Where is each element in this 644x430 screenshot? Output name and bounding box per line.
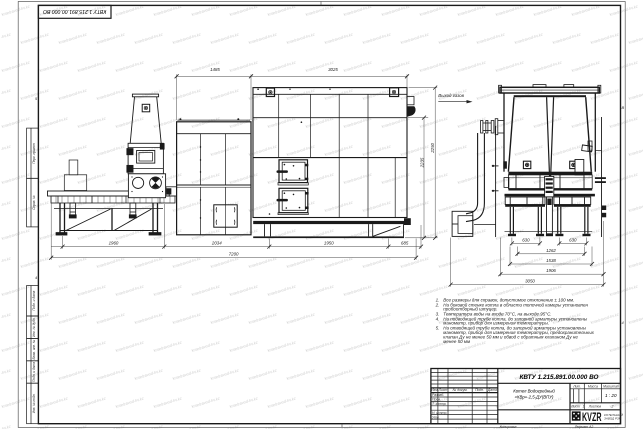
svg-text:КВТУ 1.215.891.00.000 ВО: КВТУ 1.215.891.00.000 ВО — [520, 374, 600, 381]
svg-text:KVZR: KVZR — [582, 410, 602, 424]
svg-text:2250: 2250 — [430, 142, 435, 153]
svg-text:2034: 2034 — [211, 241, 222, 246]
svg-text:Лист: Лист — [570, 405, 580, 409]
svg-text:1538: 1538 — [546, 258, 556, 263]
svg-text:Выход газов: Выход газов — [438, 93, 464, 98]
svg-text:7200: 7200 — [229, 252, 239, 257]
svg-text:№ докум.: № докум. — [453, 388, 468, 392]
svg-text:Формат А2: Формат А2 — [575, 425, 594, 429]
svg-text:1262: 1262 — [546, 248, 556, 253]
svg-text:2.: 2. — [435, 302, 440, 307]
svg-text:Подп. и дата: Подп. и дата — [32, 291, 36, 311]
svg-text:Пров.: Пров. — [432, 398, 441, 402]
svg-text:Масса: Масса — [588, 384, 598, 388]
svg-text:Масштаб: Масштаб — [603, 384, 619, 388]
svg-text:1950: 1950 — [324, 241, 334, 246]
svg-text:Справ. №: Справ. № — [32, 195, 36, 210]
svg-text:Инв. № подл.: Инв. № подл. — [32, 393, 36, 413]
svg-text:1: 1 — [583, 405, 585, 409]
svg-text:Подп.: Подп. — [475, 388, 484, 392]
svg-text:Котел Водогрейный: Котел Водогрейный — [513, 388, 555, 393]
svg-text:Копировал: Копировал — [500, 425, 517, 429]
svg-text:Перв. примен.: Перв. примен. — [32, 142, 36, 163]
svg-text:Лист: Лист — [438, 388, 448, 392]
svg-text:630: 630 — [522, 238, 530, 243]
svg-text:Утв.: Утв. — [432, 415, 440, 419]
svg-text:4.: 4. — [436, 316, 440, 321]
svg-text:«КВр»-2,5-ДУ(ВПУ): «КВр»-2,5-ДУ(ВПУ) — [515, 394, 554, 399]
svg-text:Дата: Дата — [487, 388, 497, 392]
svg-text:Инв. № дубл.: Инв. № дубл. — [32, 317, 36, 337]
svg-text:630: 630 — [569, 238, 577, 243]
svg-text:2: 2 — [610, 405, 613, 409]
svg-text:1485: 1485 — [210, 67, 220, 72]
svg-text:Взам. инв. №: Взам. инв. № — [32, 339, 36, 359]
svg-text:ЗАВОД РЗР: ЗАВОД РЗР — [604, 417, 621, 421]
svg-text:2235: 2235 — [419, 157, 424, 168]
svg-text:Н. контр.: Н. контр. — [432, 411, 447, 415]
svg-text:В: В — [622, 105, 625, 110]
svg-text:менее 50 мм: менее 50 мм — [443, 339, 470, 344]
svg-text:5.: 5. — [436, 326, 440, 331]
svg-text:Разраб.: Разраб. — [432, 393, 444, 397]
svg-text:Т. контр.: Т. контр. — [432, 402, 447, 406]
svg-text:Листов: Листов — [588, 405, 602, 409]
svg-text:1 : 20: 1 : 20 — [605, 393, 617, 398]
svg-text:пробоотборный штуцер.: пробоотборный штуцер. — [443, 305, 497, 311]
svg-text:3025: 3025 — [328, 67, 338, 72]
svg-text:685: 685 — [401, 241, 409, 246]
svg-text:Изм: Изм — [431, 388, 438, 392]
svg-text:КВТУ 1.215.891.00.000 ВО: КВТУ 1.215.891.00.000 ВО — [43, 8, 106, 14]
svg-text:Подп. и дата: Подп. и дата — [32, 362, 36, 382]
svg-text:1960: 1960 — [109, 241, 119, 246]
svg-text:3050: 3050 — [525, 279, 535, 284]
svg-text:Лит.: Лит. — [572, 384, 581, 388]
svg-text:1906: 1906 — [546, 268, 556, 273]
